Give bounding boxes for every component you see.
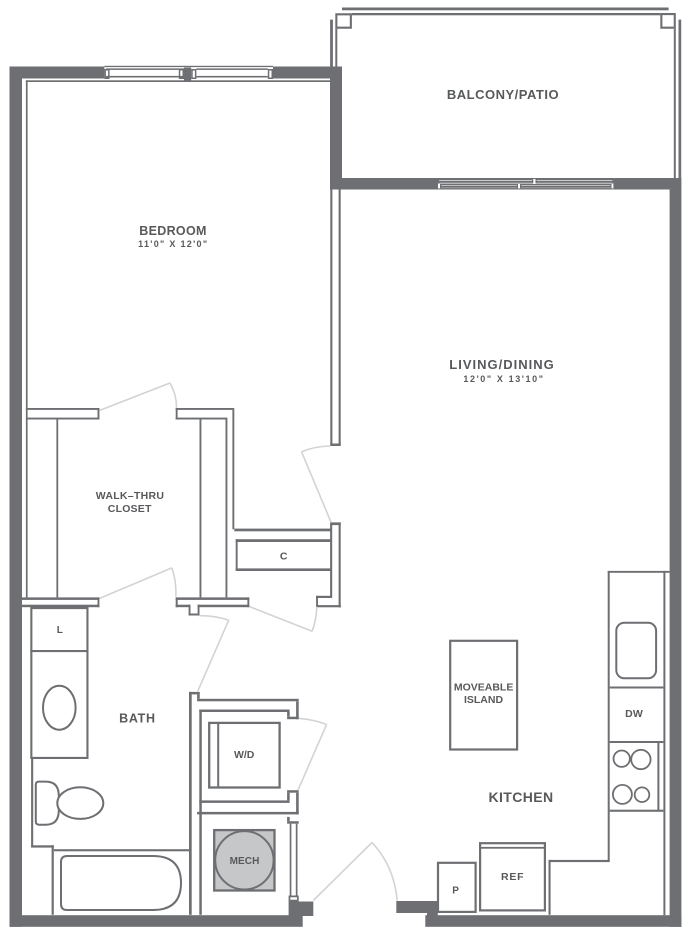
svg-text:MOVEABLE: MOVEABLE bbox=[454, 682, 514, 694]
svg-text:P: P bbox=[452, 886, 459, 897]
svg-text:BEDROOM: BEDROOM bbox=[139, 224, 206, 238]
svg-text:LIVING/DINING: LIVING/DINING bbox=[449, 357, 554, 372]
svg-text:MECH: MECH bbox=[230, 856, 260, 867]
svg-text:ISLAND: ISLAND bbox=[464, 694, 504, 706]
svg-text:REF: REF bbox=[501, 871, 524, 883]
svg-text:KITCHEN: KITCHEN bbox=[488, 789, 553, 805]
svg-text:L: L bbox=[57, 625, 64, 636]
svg-text:WALK–THRU: WALK–THRU bbox=[96, 490, 165, 502]
svg-text:12'0" X 13'10": 12'0" X 13'10" bbox=[463, 374, 544, 384]
svg-text:W/D: W/D bbox=[234, 749, 255, 761]
svg-text:DW: DW bbox=[625, 708, 643, 720]
svg-text:BALCONY/PATIO: BALCONY/PATIO bbox=[447, 87, 559, 102]
svg-text:11'0" X 12'0": 11'0" X 12'0" bbox=[138, 239, 208, 249]
svg-text:CLOSET: CLOSET bbox=[108, 503, 152, 515]
svg-text:C: C bbox=[280, 551, 288, 563]
svg-text:BATH: BATH bbox=[119, 712, 156, 726]
